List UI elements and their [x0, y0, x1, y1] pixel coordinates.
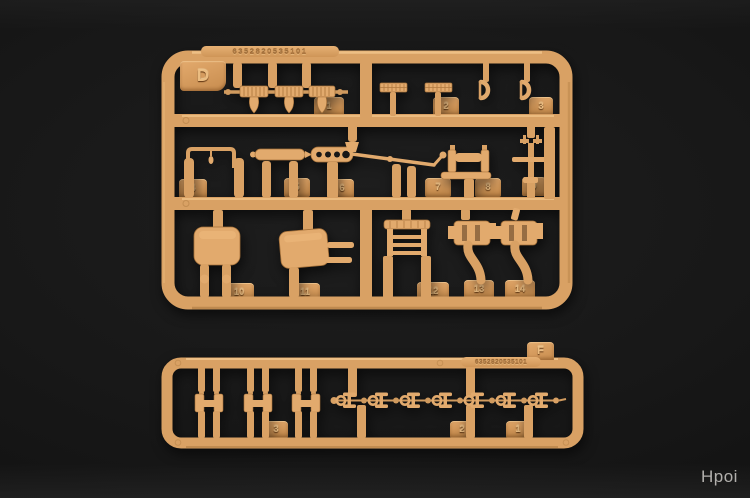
sprue-d: [164, 53, 569, 309]
watermark: Hpoi: [701, 467, 738, 487]
part-d1-finned-cylinders: [224, 62, 348, 113]
sprue-d-label: D: [180, 61, 226, 91]
part-d2-tread-plates: [380, 83, 452, 116]
sprue-photo-scene: 1 2 3 4 5 6 7 8 9 10 11 12 13 14 3 2 1: [0, 0, 750, 498]
runner-column: [544, 127, 555, 199]
runner-column: [360, 208, 372, 304]
part-d3-shackles: [480, 62, 530, 99]
part-d14-mount-arm: [495, 207, 543, 280]
sprue-f: [167, 359, 578, 447]
part-f3-brackets: [195, 367, 320, 438]
part-d12-frame-chair: [383, 209, 431, 298]
part-d13-mount-arm: [448, 209, 496, 280]
part-d7-rod-assembly: [345, 122, 447, 198]
sprue-f-mold-number: 6352820535101: [461, 357, 541, 367]
part-d11-seat: [279, 210, 354, 298]
part-d6-holed-plate: [311, 147, 353, 198]
part-d5-roller: [250, 149, 312, 198]
part-d8-bracket: [441, 145, 491, 198]
runner-column: [360, 62, 372, 118]
sprues-artwork: [0, 0, 750, 498]
sprue-d-rails: [170, 116, 564, 207]
sprue-d-mold-number: 6352820535101: [201, 46, 339, 57]
part-d4-grab-handle: [184, 149, 244, 198]
part-f-clip-chain: [331, 367, 567, 438]
sprue-f-frame: [167, 363, 578, 443]
part-d10-seat: [194, 210, 240, 298]
